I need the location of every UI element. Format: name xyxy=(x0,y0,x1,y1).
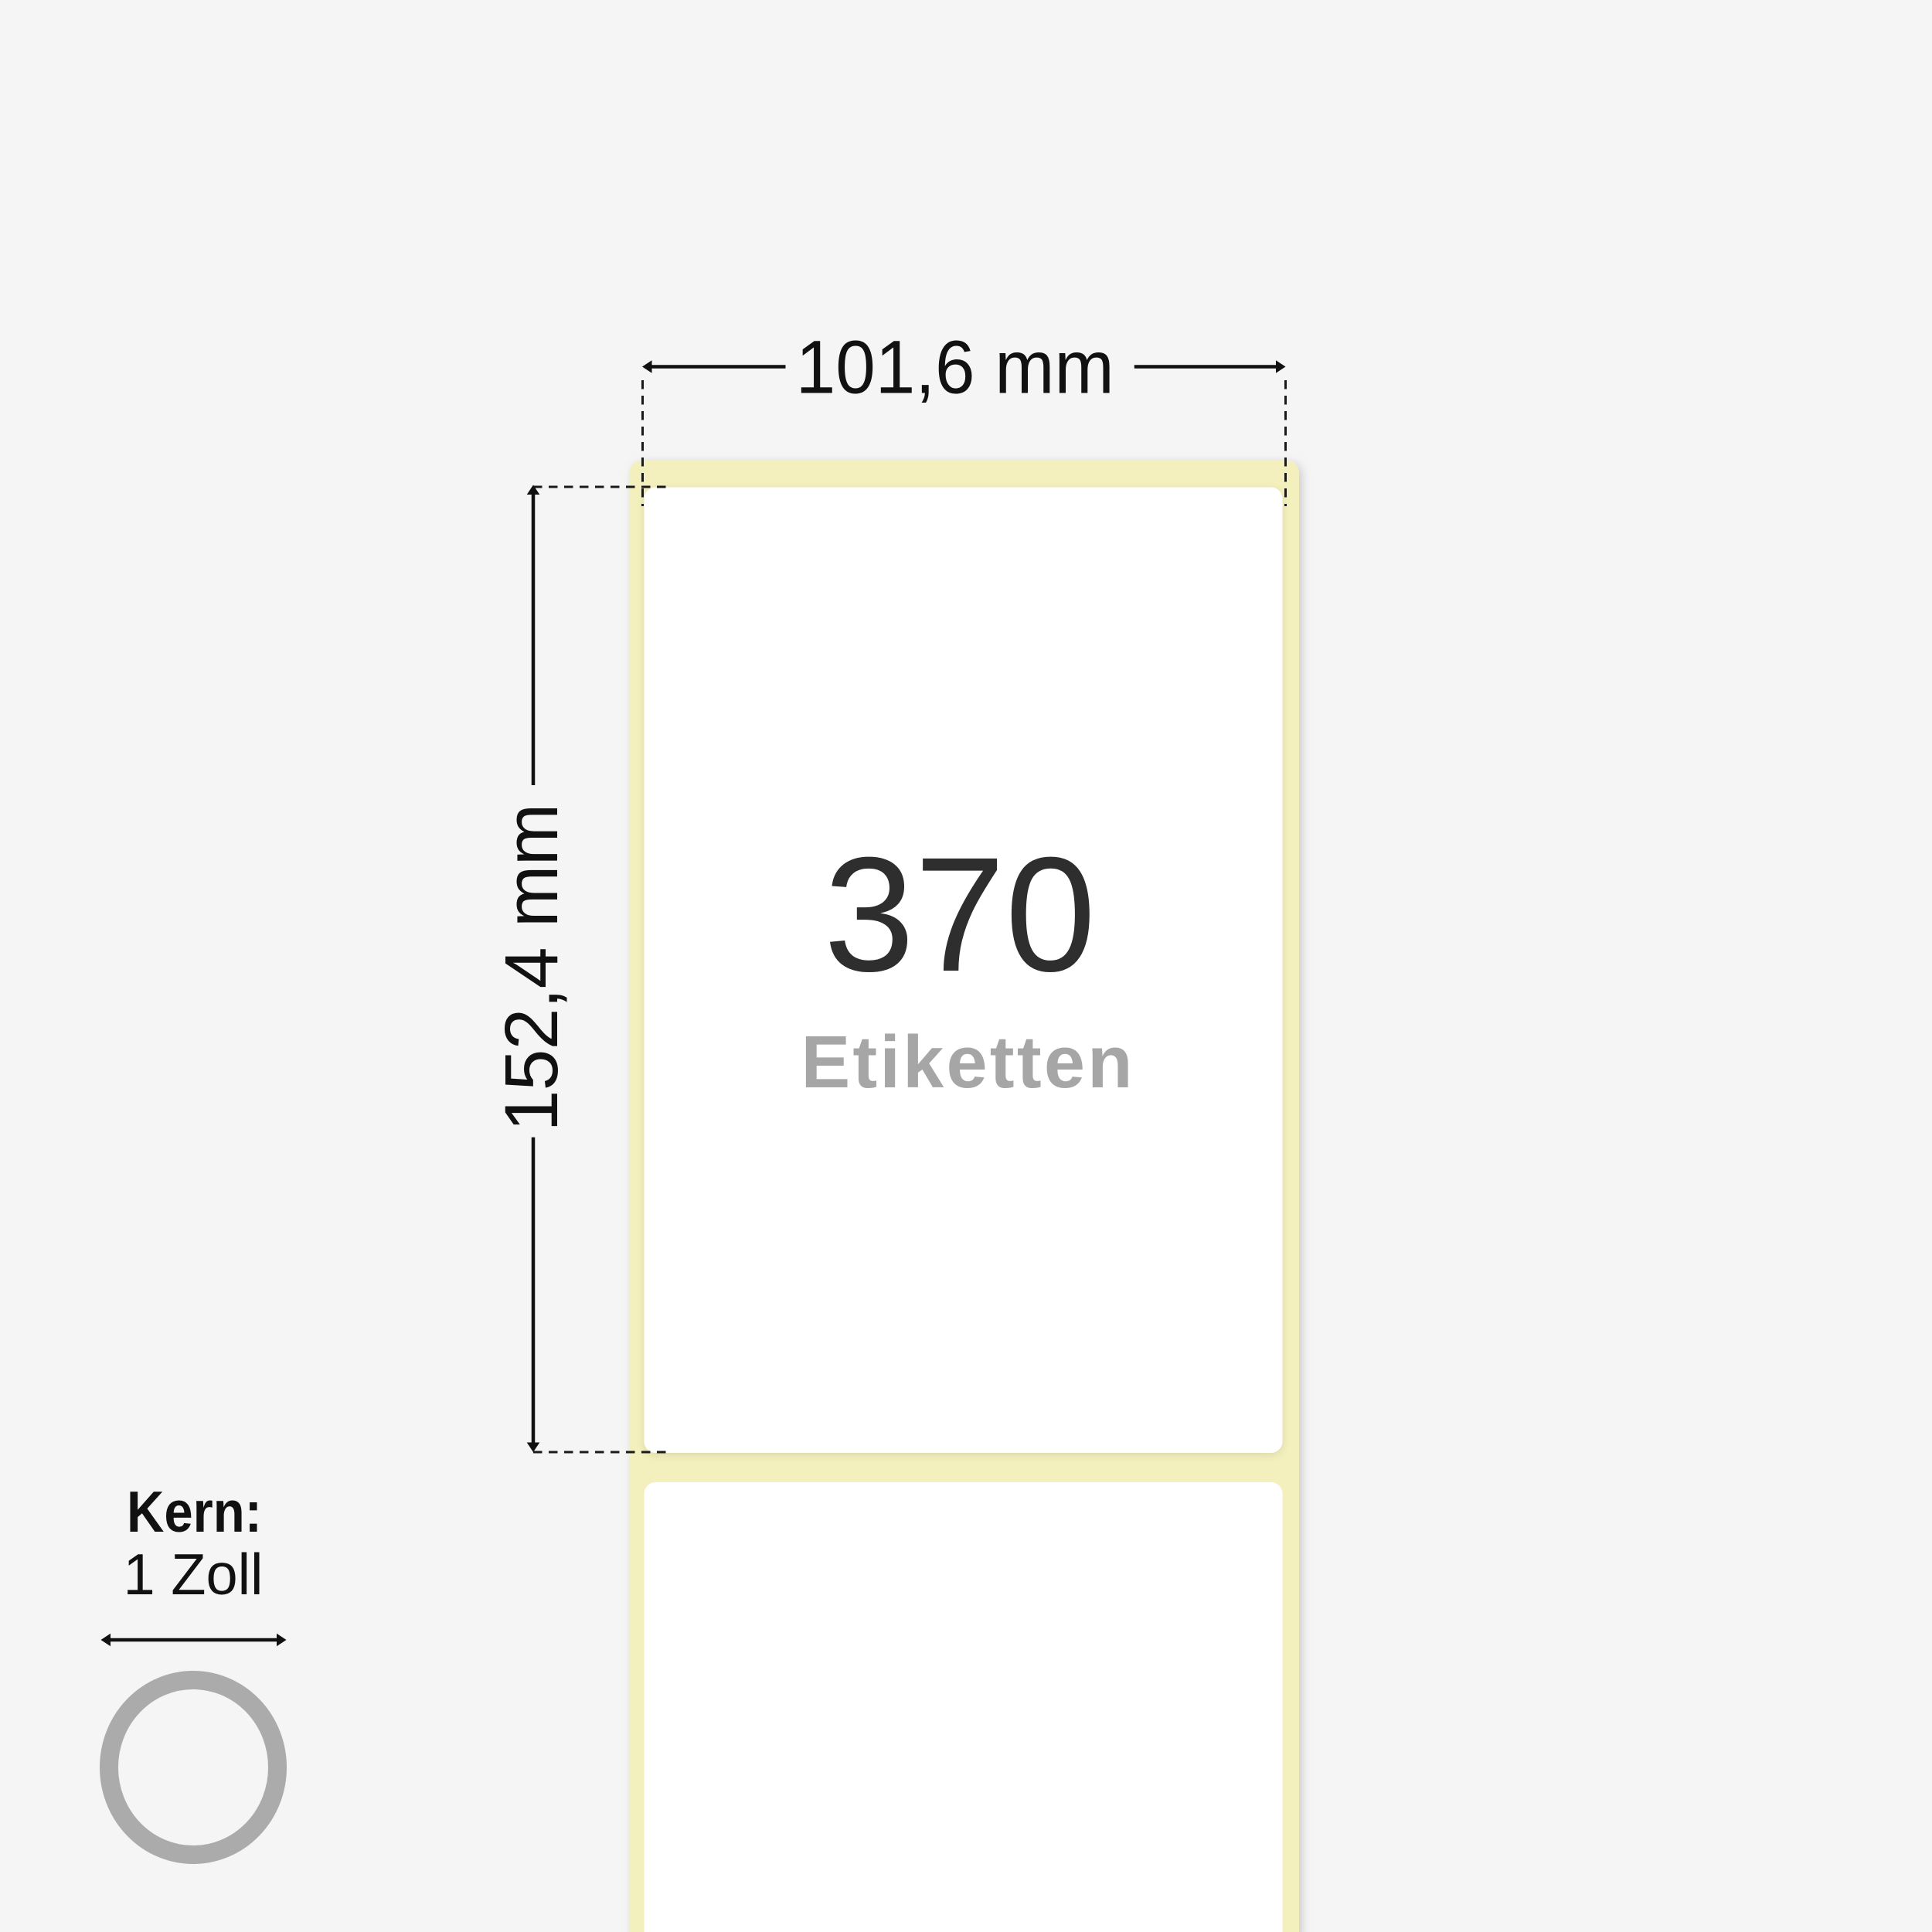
svg-text:101,6 mm: 101,6 mm xyxy=(796,325,1114,409)
svg-text:370: 370 xyxy=(824,823,1096,1005)
svg-text:Kern:: Kern: xyxy=(127,1479,262,1544)
svg-text:152,4 mm: 152,4 mm xyxy=(489,804,573,1131)
svg-text:1 Zoll: 1 Zoll xyxy=(124,1542,264,1607)
